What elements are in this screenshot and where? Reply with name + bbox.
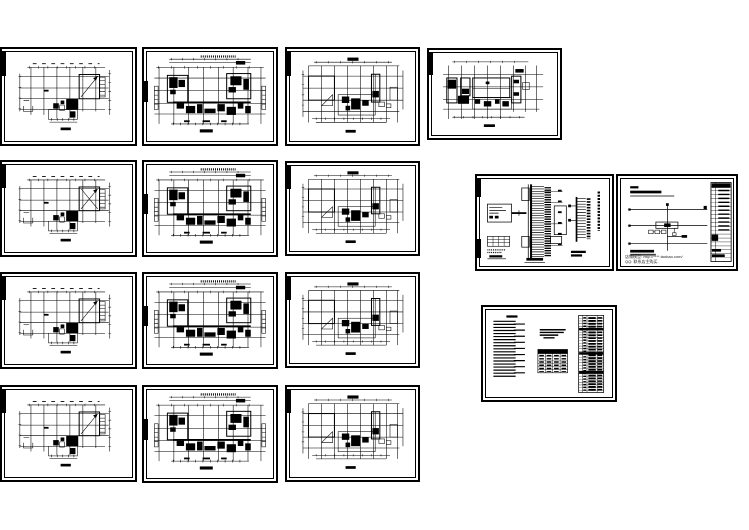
- floor-plan-r4c1: [0, 385, 137, 482]
- sheet-inner-frame: [4, 51, 133, 142]
- floor-plan-art: [432, 53, 557, 135]
- sheet-inner-frame: [431, 52, 558, 136]
- floor-plan-r3c3: [285, 272, 420, 368]
- sheet-inner-frame: [146, 51, 274, 142]
- floor-plan-r4c2: [142, 385, 278, 483]
- sheet-inner-frame: [146, 389, 274, 479]
- sheet-inner-frame: [289, 389, 416, 478]
- floor-plan-r3c1: [0, 272, 137, 369]
- system-diagram-art: [621, 179, 733, 266]
- system-distribution-diagram: 店铺模型: http://****.taobao.com/QQ: 联系店主购买.: [616, 174, 738, 271]
- floor-plan-art: [5, 277, 132, 364]
- drawing-set-canvas: 店铺模型: http://****.taobao.com/QQ: 联系店主购买.: [0, 0, 749, 530]
- floor-plan-r1c4: [427, 48, 562, 140]
- sheet-inner-frame: [146, 276, 274, 365]
- floor-plan-art: [5, 52, 132, 141]
- floor-plan-art: [290, 52, 415, 141]
- floor-plan-r1c1: [0, 47, 137, 146]
- floor-plan-r1c3: [285, 47, 420, 146]
- sheet-inner-frame: [4, 164, 133, 253]
- floor-plan-art: [5, 390, 132, 477]
- floor-plan-r2c2: [142, 160, 278, 257]
- binding-edge-bar: [2, 389, 6, 413]
- floor-plan-art: [147, 165, 273, 252]
- floor-plan-art: [290, 166, 415, 251]
- floor-plan-art: [290, 277, 415, 363]
- binding-edge-bar: [477, 178, 481, 197]
- floor-plan-r2c1: [0, 160, 137, 257]
- binding-edge-bar: [144, 419, 148, 440]
- floor-plan-art: [147, 52, 273, 141]
- binding-edge-bar: [2, 51, 6, 76]
- sheet-inner-frame: [4, 389, 133, 478]
- floor-plan-art: [147, 277, 273, 364]
- design-notes-legend: [481, 305, 617, 402]
- floor-plan-r2c3: [285, 161, 420, 256]
- sheet-inner-frame: [146, 164, 274, 253]
- sheet-inner-frame: [479, 178, 610, 267]
- sheet-inner-frame: [289, 276, 416, 364]
- binding-edge-bar: [2, 164, 6, 188]
- sheet-inner-frame: [289, 165, 416, 252]
- sheet-inner-frame: [4, 276, 133, 365]
- system-diagram-art: [480, 179, 609, 266]
- binding-edge-bar: [144, 194, 148, 214]
- watermark-line-2: QQ: 联系店主购买.: [625, 259, 683, 264]
- floor-plan-art: [147, 390, 273, 478]
- binding-edge-bar: [287, 276, 291, 300]
- binding-edge-bar: [429, 52, 433, 75]
- sheet-inner-frame: [289, 51, 416, 142]
- floor-plan-art: [290, 390, 415, 477]
- binding-edge-bar: [287, 51, 291, 76]
- watermark-text: 店铺模型: http://****.taobao.com/QQ: 联系店主购买.: [625, 254, 683, 264]
- floor-plan-art: [5, 165, 132, 252]
- floor-plan-r4c3: [285, 385, 420, 482]
- binding-edge-bar: [287, 165, 291, 189]
- sheet-inner-frame: [485, 309, 613, 398]
- binding-edge-bar: [144, 81, 148, 102]
- binding-edge-bar: [2, 276, 6, 300]
- notes-sheet-art: [486, 310, 612, 397]
- floor-plan-r3c2: [142, 272, 278, 369]
- binding-edge-bar: [477, 239, 481, 258]
- floor-plan-r1c2: [142, 47, 278, 146]
- binding-edge-bar: [144, 306, 148, 326]
- binding-edge-bar: [287, 389, 291, 413]
- system-riser-diagram: [475, 174, 614, 271]
